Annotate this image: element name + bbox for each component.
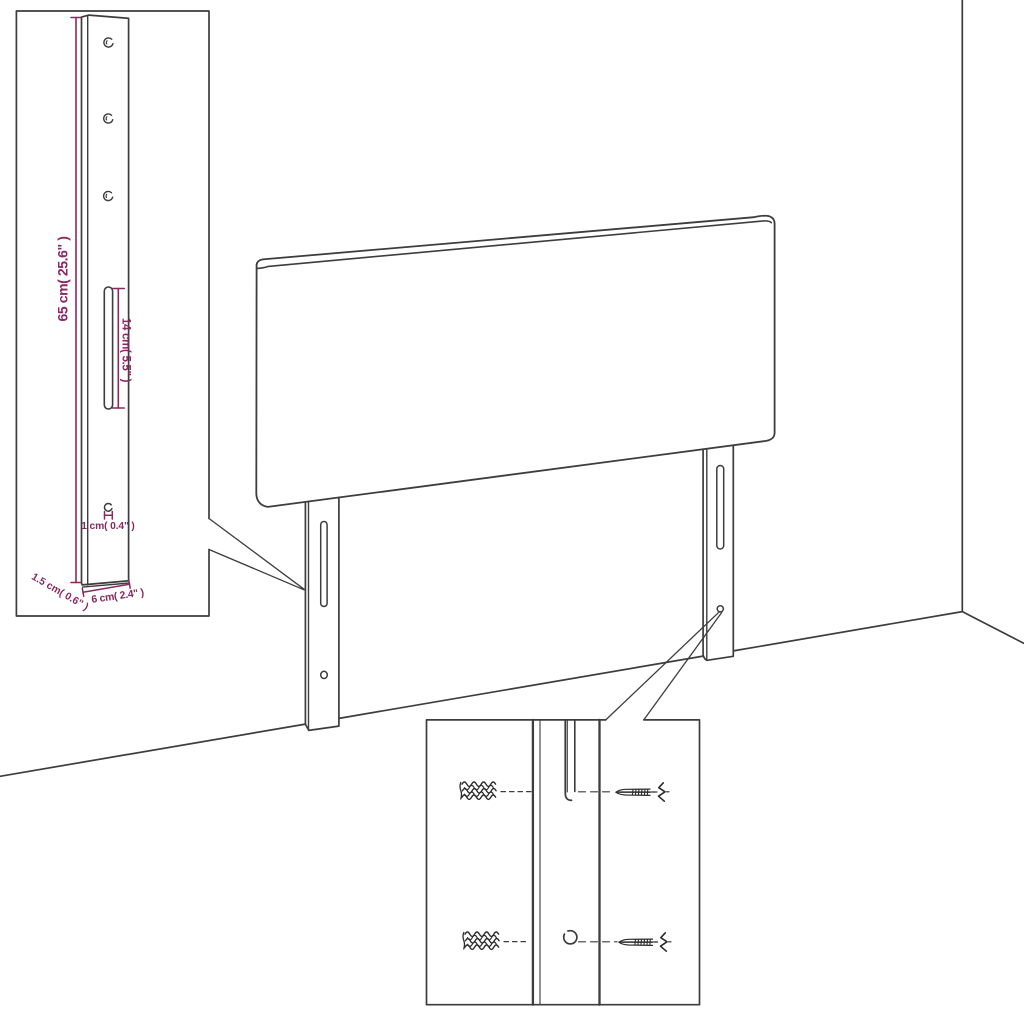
svg-text:14 cm( 5.5" ): 14 cm( 5.5" ) xyxy=(120,318,132,383)
svg-text:65 cm( 25.6" ): 65 cm( 25.6" ) xyxy=(55,236,71,321)
svg-text:1 cm( 0.4" ): 1 cm( 0.4" ) xyxy=(81,521,134,532)
